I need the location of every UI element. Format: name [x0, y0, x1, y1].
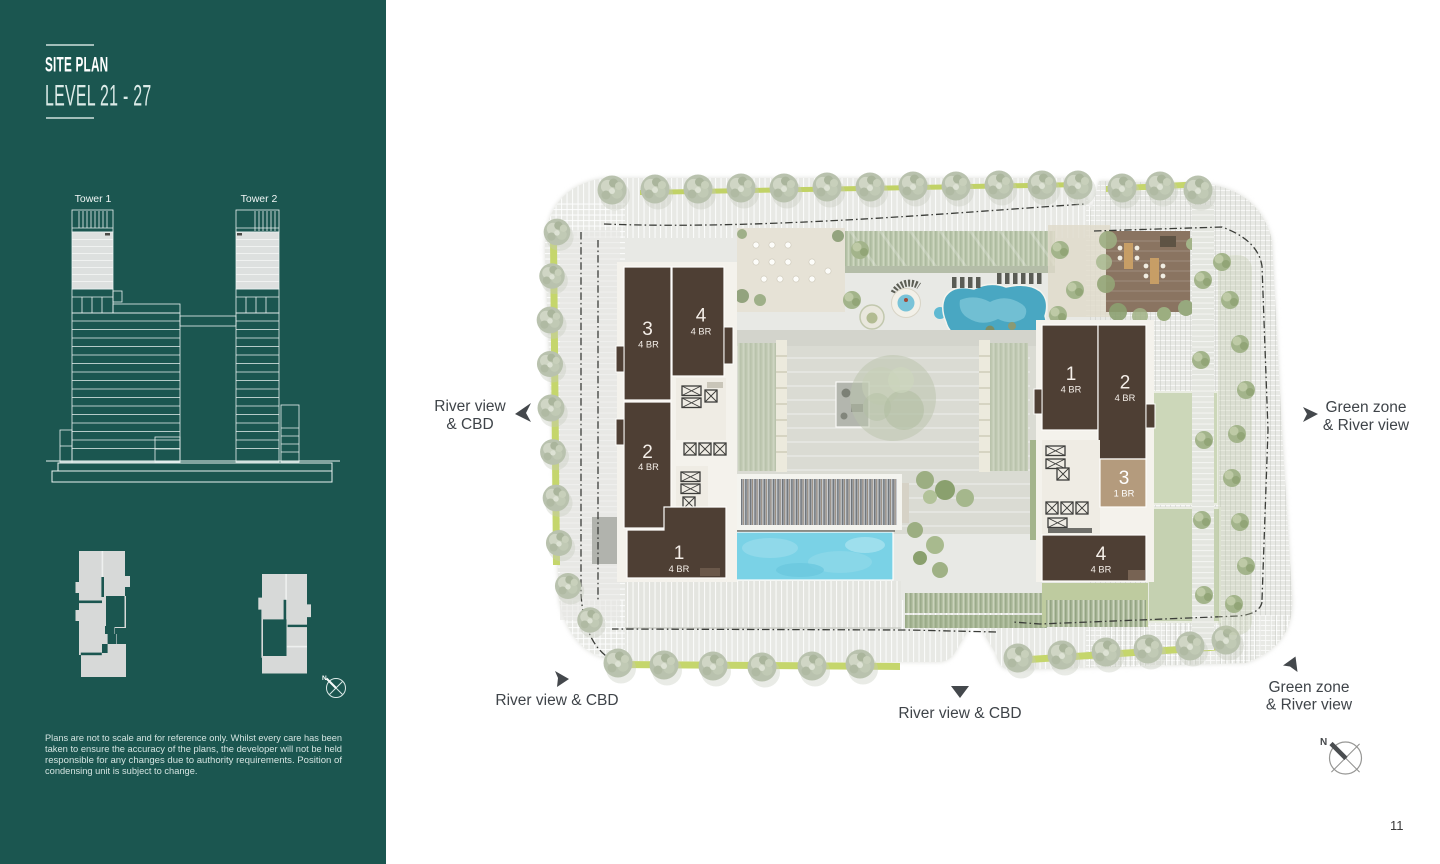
svg-text:taken to ensure the accuracy o: taken to ensure the accuracy of the plan… — [45, 744, 342, 754]
svg-text:responsible for any changes du: responsible for any changes due to autho… — [45, 755, 342, 765]
svg-text:4 BR: 4 BR — [1115, 393, 1136, 403]
svg-text:& River view: & River view — [1323, 417, 1410, 434]
svg-text:4 BR: 4 BR — [638, 340, 659, 350]
svg-text:N: N — [322, 675, 327, 682]
svg-text:Tower 1: Tower 1 — [75, 193, 112, 205]
svg-text:4 BR: 4 BR — [669, 564, 690, 574]
svg-text:3: 3 — [642, 319, 653, 340]
svg-text:1: 1 — [1066, 364, 1077, 385]
svg-text:River view & CBD: River view & CBD — [495, 692, 618, 709]
svg-text:condensing unit is subject to: condensing unit is subject to change. — [45, 766, 197, 776]
svg-text:SITE PLAN: SITE PLAN — [45, 53, 108, 76]
svg-text:4 BR: 4 BR — [638, 462, 659, 472]
svg-text:2: 2 — [642, 442, 653, 463]
svg-text:4 BR: 4 BR — [691, 327, 712, 337]
svg-text:3: 3 — [1119, 468, 1130, 489]
svg-text:4 BR: 4 BR — [1061, 385, 1082, 395]
svg-text:1 BR: 1 BR — [1114, 489, 1135, 499]
svg-text:Plans are not to scale and for: Plans are not to scale and for reference… — [45, 733, 342, 743]
svg-text:11: 11 — [1390, 818, 1404, 833]
svg-text:River view & CBD: River view & CBD — [898, 705, 1021, 722]
svg-text:Tower 2: Tower 2 — [241, 193, 278, 205]
svg-text:4 BR: 4 BR — [1091, 565, 1112, 575]
svg-text:LEVEL 21 - 27: LEVEL 21 - 27 — [45, 81, 151, 113]
svg-text:& River view: & River view — [1266, 697, 1353, 714]
svg-text:1: 1 — [674, 543, 685, 564]
svg-text:River view: River view — [434, 398, 506, 415]
svg-text:N: N — [1320, 737, 1327, 748]
svg-text:Green zone: Green zone — [1269, 679, 1350, 696]
svg-text:& CBD: & CBD — [446, 416, 493, 433]
svg-text:4: 4 — [696, 306, 707, 327]
svg-text:2: 2 — [1120, 373, 1131, 394]
svg-text:4: 4 — [1096, 544, 1107, 565]
svg-text:Green zone: Green zone — [1326, 399, 1407, 416]
